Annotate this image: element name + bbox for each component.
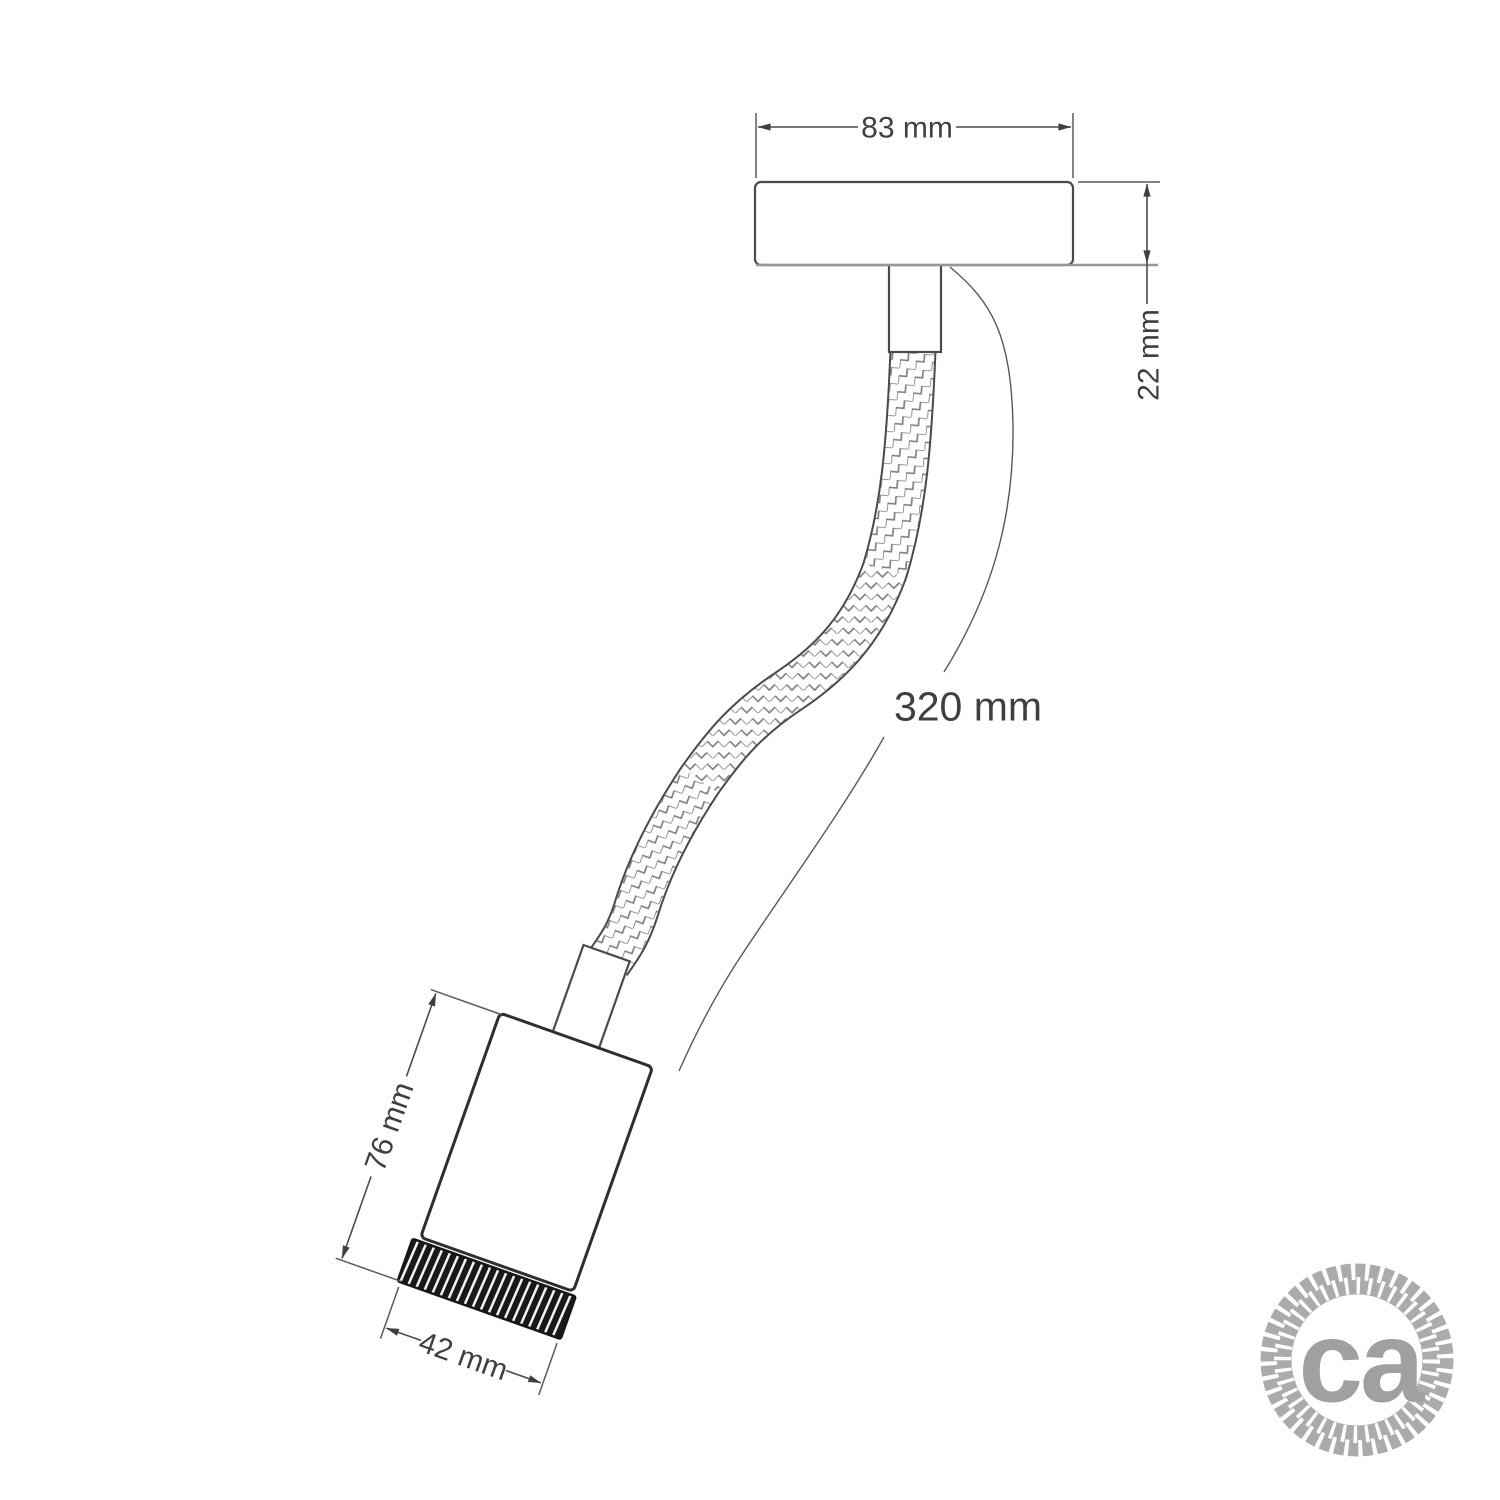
- canopy-width-label: 83 mm: [861, 112, 953, 145]
- flexible-arm-braid-middle: [700, 570, 885, 780]
- canopy-depth-label: 22 mm: [1133, 309, 1166, 401]
- technical-drawing: 320 mm 83 mm 22 mm 76 mm: [0, 0, 1500, 1500]
- flexible-arm-braid-bottom: [608, 780, 700, 963]
- leader-curve-upper: [944, 267, 1013, 672]
- ceiling-canopy: [755, 182, 1073, 265]
- dimension-canopy-width: 83 mm: [756, 108, 1073, 178]
- canopy-stem: [889, 262, 941, 352]
- arm-length-label: 320 mm: [894, 683, 1042, 729]
- witness-line-right: [539, 1343, 557, 1395]
- holder-body: [421, 1013, 653, 1291]
- holder-length-label: 76 mm: [359, 1078, 421, 1175]
- flexible-arm: [608, 350, 913, 963]
- dimension-canopy-depth: 22 mm: [1078, 182, 1166, 401]
- brand-logo: ca: [1269, 1272, 1446, 1449]
- witness-line-top: [431, 990, 502, 1015]
- holder-diameter-label: 42 mm: [415, 1326, 512, 1388]
- brand-logo-text: ca: [1298, 1296, 1426, 1426]
- arm-length-leader: 320 mm: [679, 267, 1042, 1071]
- witness-line-bottom: [336, 1258, 401, 1281]
